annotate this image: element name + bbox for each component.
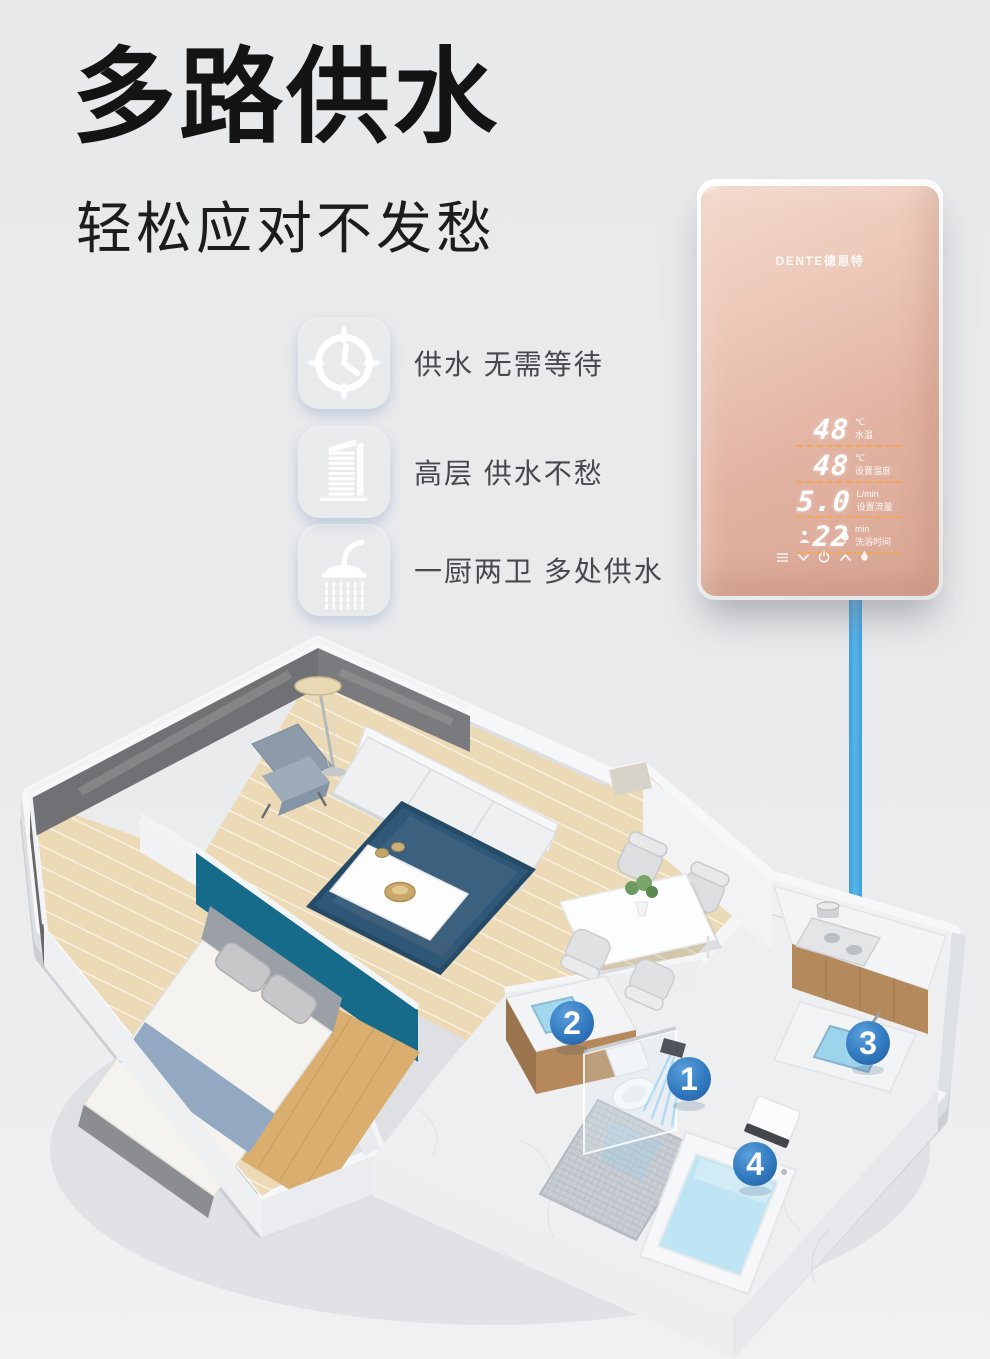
feature-row: 高层 供水不愁 [298,426,604,518]
display-row: 48 ℃ 设置温度 [797,454,901,483]
person-icon [799,530,810,544]
display-unit: ℃ [855,418,873,427]
floorplan-illustration: 1 2 3 4 [0,620,990,1359]
drop-icon [840,530,850,544]
water-heater: DENTE德恩特 48 ℃ 水温 48 ℃ 设置温度 5.0 L/min 设置流… [697,179,943,600]
display-row: 5.0 L/min 设置流量 [797,490,901,519]
svg-text:2: 2 [563,1005,581,1041]
brand-logo: DENTE德恩特 [701,252,939,269]
svg-text:1: 1 [680,1061,698,1097]
clock-icon [298,317,390,409]
display-unit: L/min [857,490,893,499]
svg-text:3: 3 [859,1025,877,1061]
power-icon [818,551,830,563]
promo-page: 多路供水 轻松应对不发愁 供水 无需等待 [0,0,990,1359]
display-value: 5.0 [796,490,851,514]
display-label: 水温 [855,431,873,440]
display-value: 48 [796,454,850,478]
heater-glass-panel: DENTE德恩特 48 ℃ 水温 48 ℃ 设置温度 5.0 L/min 设置流… [701,186,939,596]
shower-icon [298,524,390,616]
chevron-down-icon [798,554,809,561]
drop-icon [860,551,869,563]
chevron-up-icon [840,554,851,561]
feature-row: 供水 无需等待 [298,317,604,409]
display-label: 设置温度 [855,467,891,476]
feature-label: 高层 供水不愁 [414,452,604,492]
feature-row: 一厨两卫 多处供水 [298,524,664,616]
mode-indicators [799,530,850,544]
svg-text:4: 4 [746,1146,764,1182]
display-row: 48 ℃ 水温 [797,418,901,447]
menu-icon [777,553,788,562]
touch-controls [777,551,869,563]
page-subtitle: 轻松应对不发愁 [76,184,496,265]
building-icon [298,426,390,518]
display-label: 洗浴时间 [855,538,891,547]
display-unit: min [855,525,891,534]
display-unit: ℃ [855,454,891,463]
feature-label: 一厨两卫 多处供水 [414,550,664,590]
feature-label: 供水 无需等待 [414,343,604,383]
page-title: 多路供水 [72,44,500,153]
display-label: 设置流量 [857,503,893,512]
display-value: 48 [796,418,850,442]
